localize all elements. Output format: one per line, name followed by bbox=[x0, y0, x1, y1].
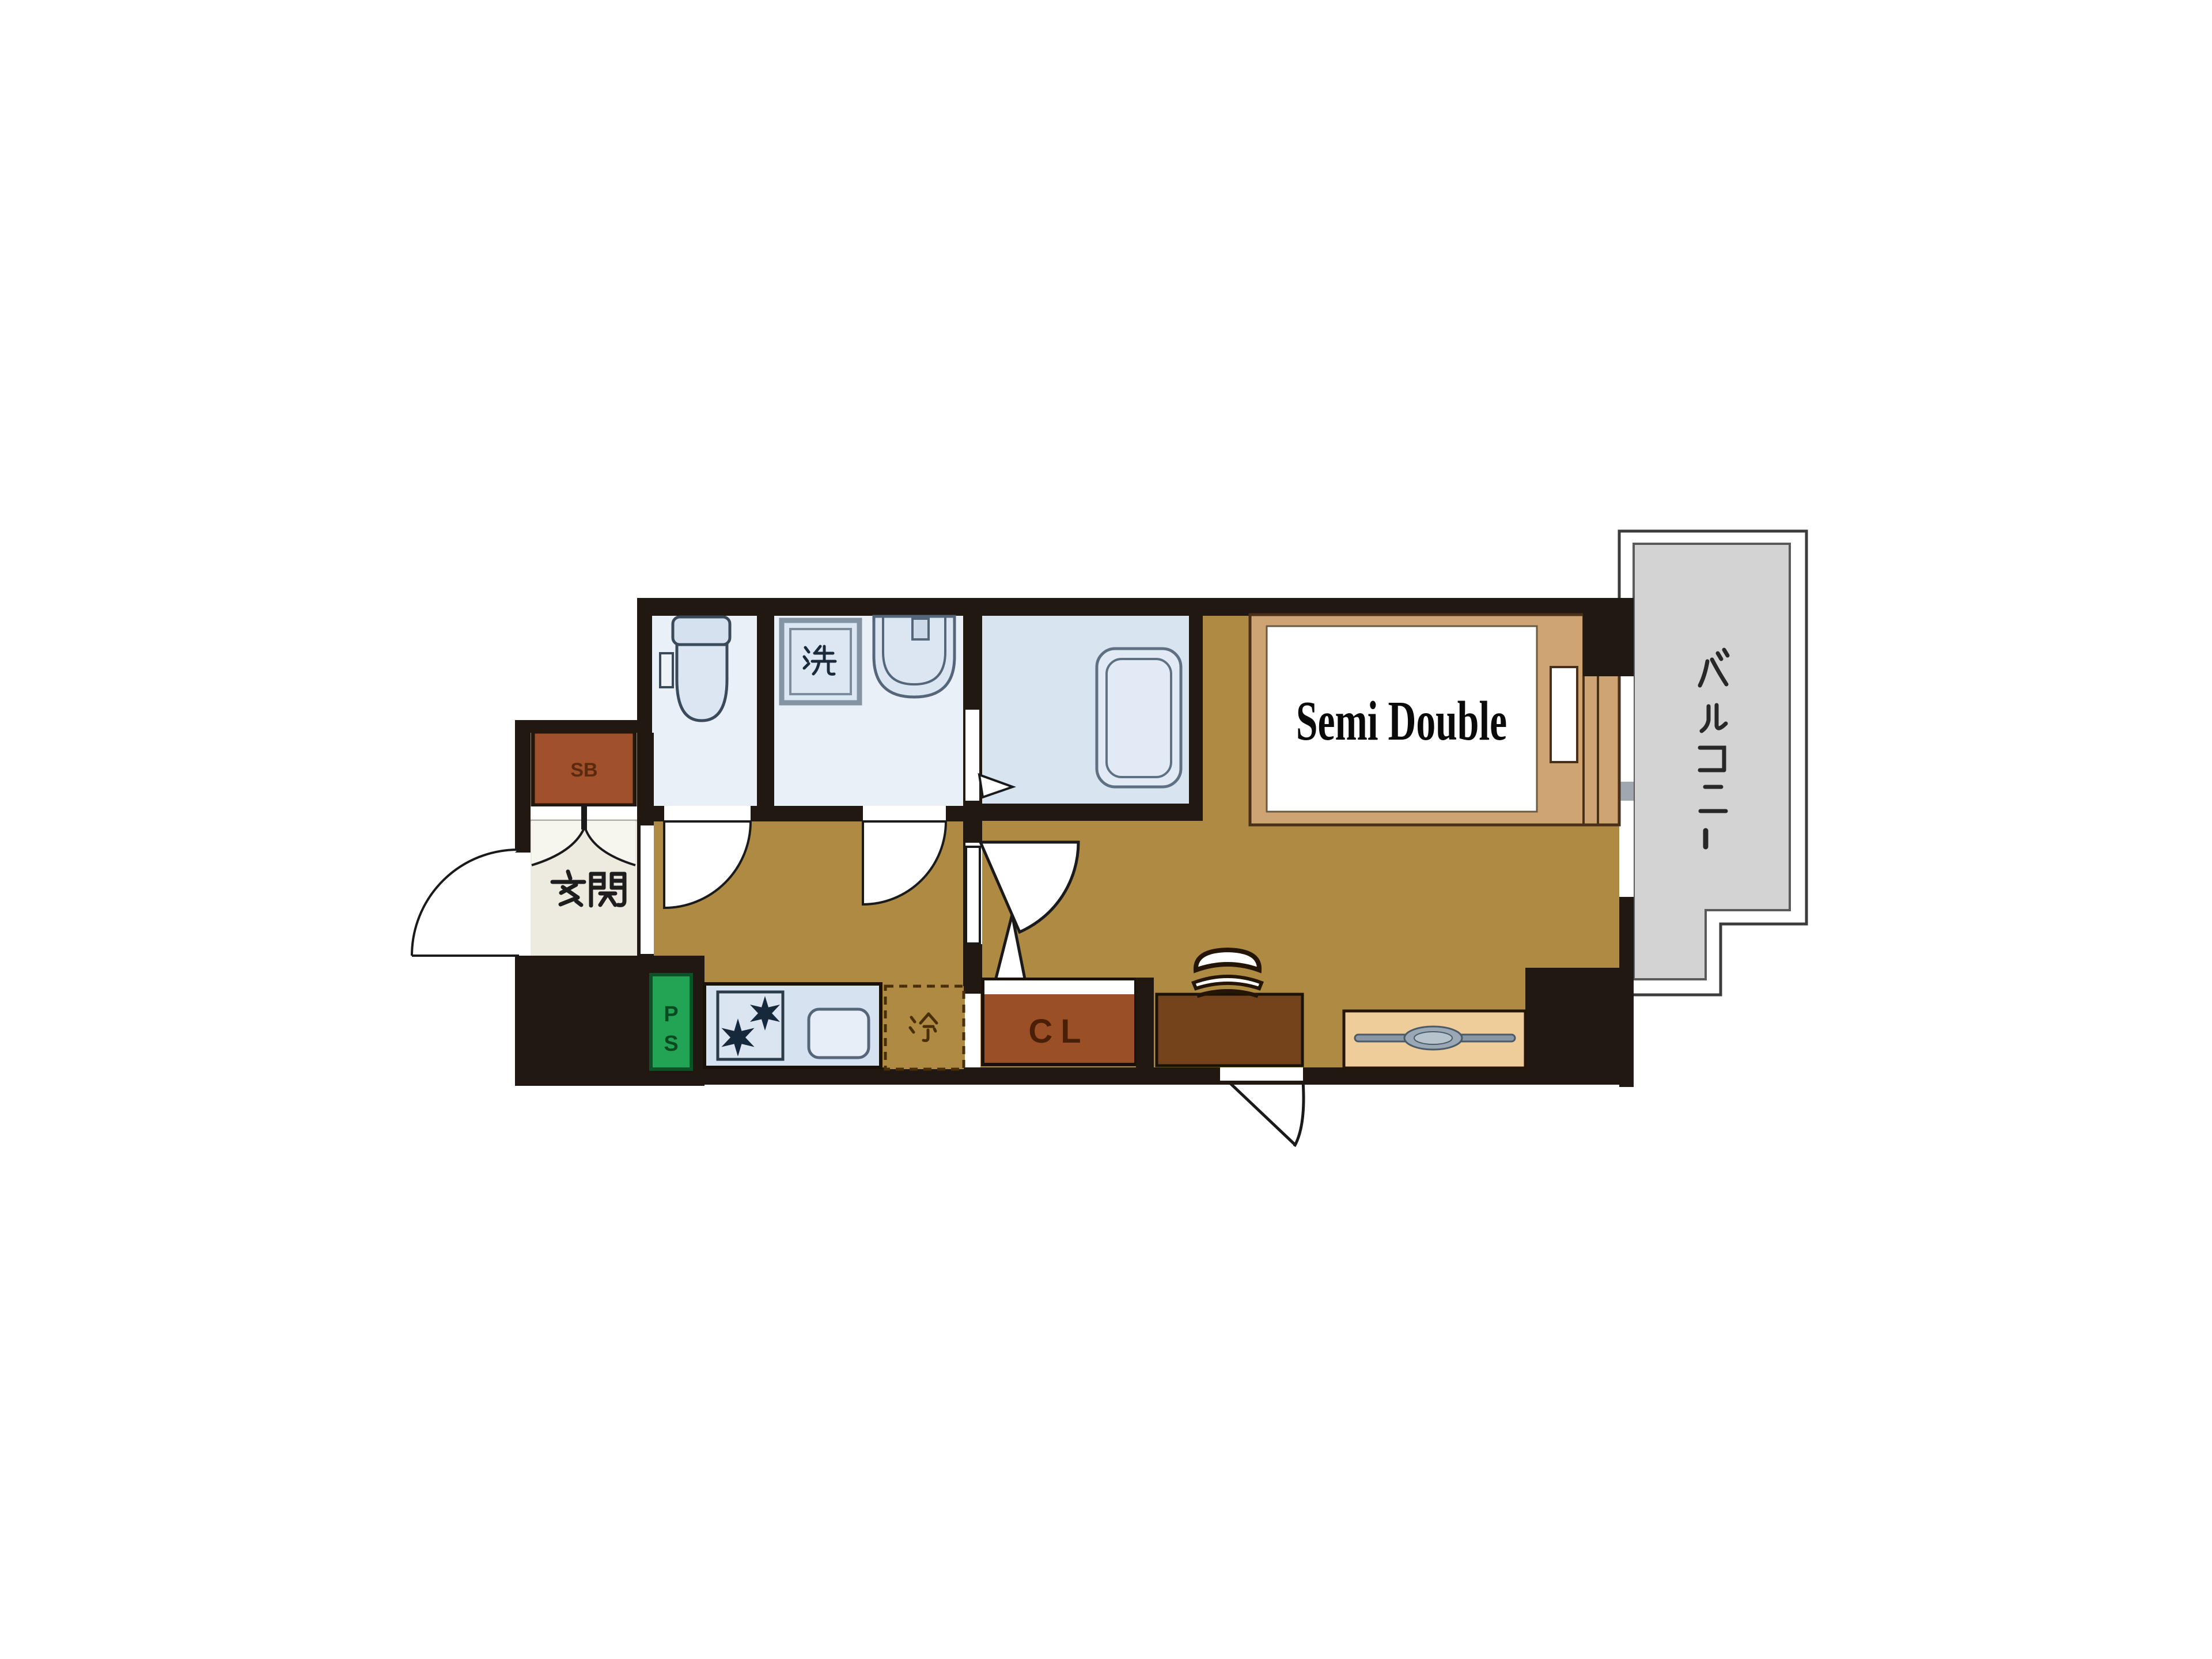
svg-text:SB: SB bbox=[570, 759, 597, 781]
svg-text:S: S bbox=[664, 1032, 678, 1056]
svg-text:CL: CL bbox=[1028, 1013, 1089, 1050]
svg-text:Semi Double: Semi Double bbox=[1296, 690, 1507, 752]
svg-text:P: P bbox=[664, 1002, 678, 1027]
